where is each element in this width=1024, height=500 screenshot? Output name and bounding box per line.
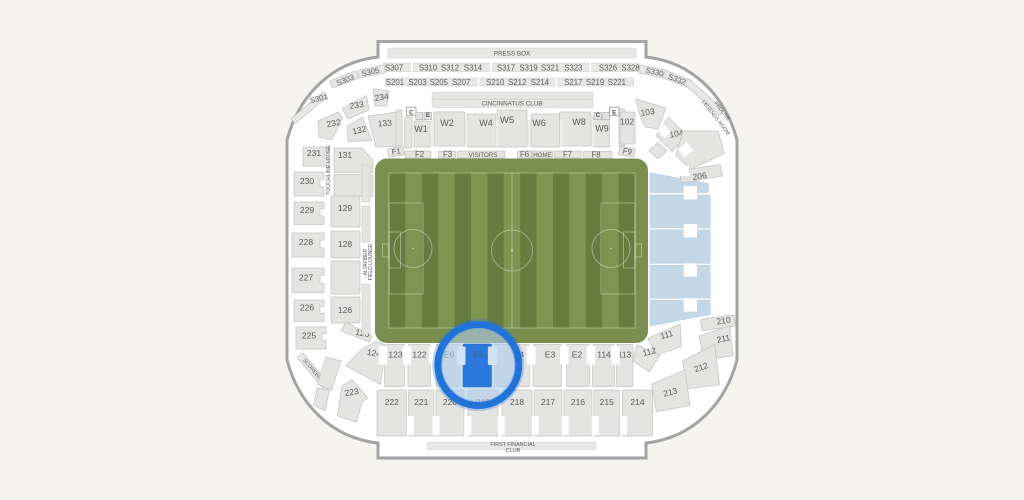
- svg-text:229: 229: [300, 205, 314, 215]
- svg-text:102: 102: [620, 117, 634, 127]
- svg-text:C: C: [596, 112, 601, 119]
- svg-text:126: 126: [338, 305, 352, 315]
- svg-text:128: 128: [338, 239, 352, 249]
- svg-text:123: 123: [388, 350, 402, 360]
- svg-text:206: 206: [692, 170, 708, 182]
- svg-text:W6: W6: [532, 118, 546, 128]
- svg-text:214: 214: [630, 397, 644, 407]
- svg-text:W5: W5: [500, 115, 514, 126]
- svg-text:S312: S312: [441, 63, 459, 72]
- svg-text:CLUB: CLUB: [506, 448, 521, 454]
- svg-text:E2: E2: [572, 350, 583, 360]
- svg-text:E: E: [612, 110, 616, 117]
- svg-text:S326: S326: [599, 63, 617, 72]
- svg-text:133: 133: [377, 118, 392, 129]
- svg-text:F8: F8: [591, 151, 600, 160]
- svg-text:215: 215: [600, 397, 614, 407]
- svg-text:227: 227: [299, 273, 313, 283]
- svg-text:S321: S321: [541, 63, 559, 72]
- svg-text:217: 217: [541, 397, 555, 407]
- svg-text:216: 216: [571, 397, 585, 407]
- svg-text:131: 131: [338, 150, 352, 160]
- svg-text:S314: S314: [464, 63, 483, 72]
- svg-text:CINCINNATUS CLUB: CINCINNATUS CLUB: [481, 100, 542, 107]
- svg-text:F2: F2: [415, 150, 424, 159]
- svg-text:S307: S307: [385, 63, 403, 72]
- svg-text:129: 129: [338, 203, 352, 213]
- svg-text:F9: F9: [622, 146, 632, 156]
- svg-text:W4: W4: [479, 118, 493, 128]
- svg-text:HOME: HOME: [533, 152, 552, 159]
- svg-text:W1: W1: [414, 124, 428, 134]
- svg-text:113: 113: [618, 350, 632, 360]
- svg-text:C: C: [409, 110, 414, 117]
- svg-text:S214: S214: [531, 78, 550, 87]
- svg-text:S203: S203: [408, 78, 426, 87]
- svg-text:S205: S205: [430, 78, 449, 87]
- svg-text:TOUCHLINE LODGE: TOUCHLINE LODGE: [326, 145, 332, 195]
- svg-text:S217: S217: [564, 78, 582, 87]
- svg-text:233: 233: [349, 99, 365, 111]
- svg-text:S317: S317: [497, 63, 515, 72]
- svg-text:223: 223: [344, 386, 360, 398]
- svg-text:F1: F1: [391, 146, 401, 156]
- svg-text:S210: S210: [486, 78, 505, 87]
- svg-text:S201: S201: [386, 78, 404, 87]
- svg-text:221: 221: [414, 397, 428, 407]
- svg-text:222: 222: [385, 397, 399, 407]
- svg-text:S310: S310: [419, 63, 438, 72]
- svg-text:S323: S323: [564, 63, 582, 72]
- svg-text:122: 122: [412, 350, 426, 360]
- svg-text:F7: F7: [563, 150, 572, 159]
- svg-text:103: 103: [640, 106, 656, 118]
- svg-text:210: 210: [716, 315, 732, 327]
- svg-text:S212: S212: [508, 78, 526, 87]
- svg-text:F3: F3: [443, 150, 452, 159]
- svg-text:FIELD LOUNGE: FIELD LOUNGE: [368, 243, 374, 280]
- svg-text:W9: W9: [595, 124, 609, 134]
- svg-text:S207: S207: [452, 78, 470, 87]
- svg-text:230: 230: [300, 176, 314, 186]
- svg-text:231: 231: [307, 148, 321, 158]
- svg-text:S328: S328: [621, 63, 639, 72]
- svg-text:PRESS BOX: PRESS BOX: [494, 51, 531, 58]
- svg-text:E: E: [426, 112, 430, 119]
- svg-text:W2: W2: [440, 118, 454, 128]
- svg-text:S319: S319: [519, 63, 537, 72]
- svg-text:218: 218: [510, 397, 524, 407]
- svg-text:228: 228: [299, 237, 313, 247]
- svg-text:234: 234: [374, 91, 390, 103]
- svg-text:F6: F6: [520, 150, 529, 159]
- svg-text:E3: E3: [545, 350, 556, 360]
- svg-text:VISITORS: VISITORS: [469, 152, 498, 159]
- svg-text:225: 225: [302, 331, 316, 341]
- svg-text:226: 226: [300, 303, 314, 313]
- svg-text:S219: S219: [586, 78, 604, 87]
- svg-text:W8: W8: [572, 117, 586, 127]
- svg-text:E5: E5: [473, 350, 484, 360]
- svg-text:S221: S221: [608, 78, 626, 87]
- svg-text:114: 114: [597, 350, 611, 360]
